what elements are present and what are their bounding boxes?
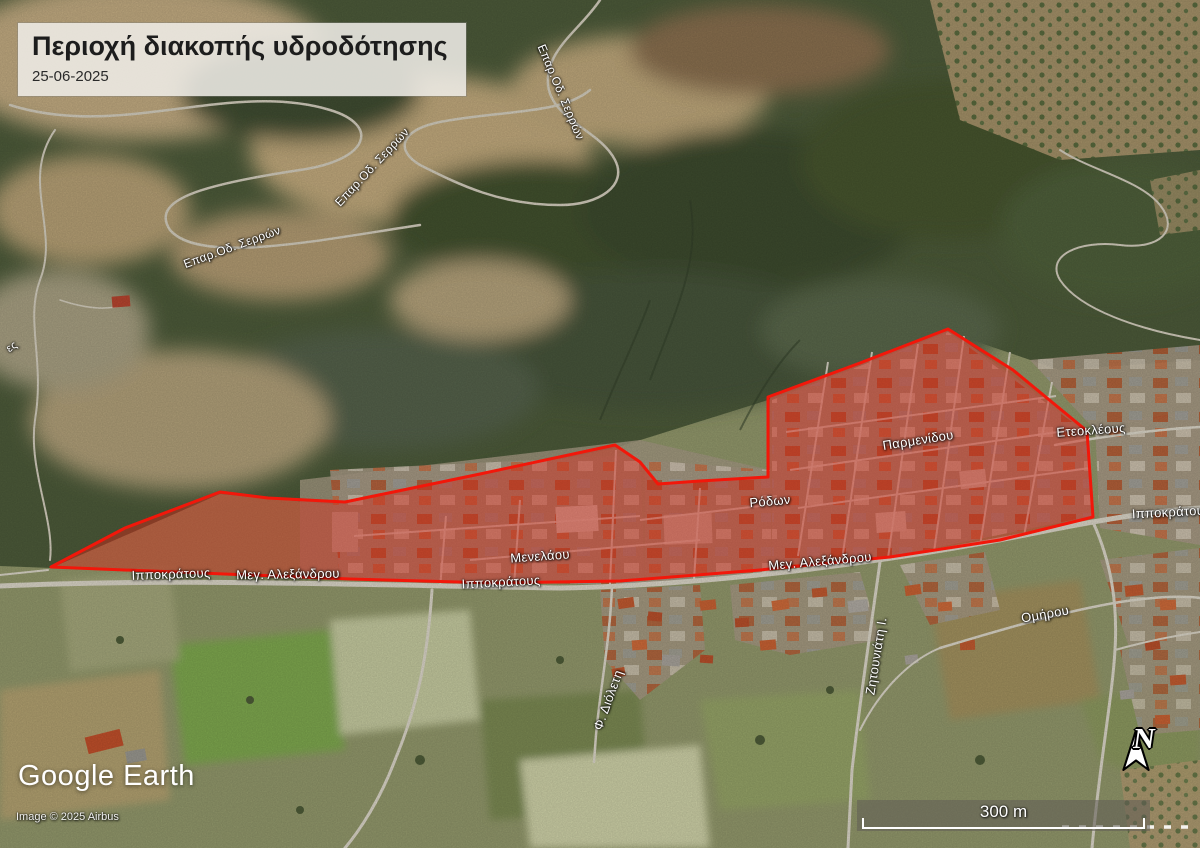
page-title: Περιοχή διακοπής υδροδότησης [32,32,448,62]
title-box: Περιοχή διακοπής υδροδότησης 25-06-2025 [18,23,466,96]
north-arrow: N [1120,729,1168,756]
map-canvas[interactable]: ΙπποκράτουςΜεγ. ΑλεξάνδρουΙπποκράτουςΜεν… [0,0,1200,848]
scale-bracket [862,818,1145,829]
scale-bar: 300 m [857,800,1150,831]
date-label: 25-06-2025 [32,68,448,85]
google-earth-logo: Google Earth [18,760,195,793]
imagery-attribution: Image © 2025 Airbus [16,811,119,823]
north-letter: N [1118,723,1171,756]
satellite-imagery [0,0,1200,848]
